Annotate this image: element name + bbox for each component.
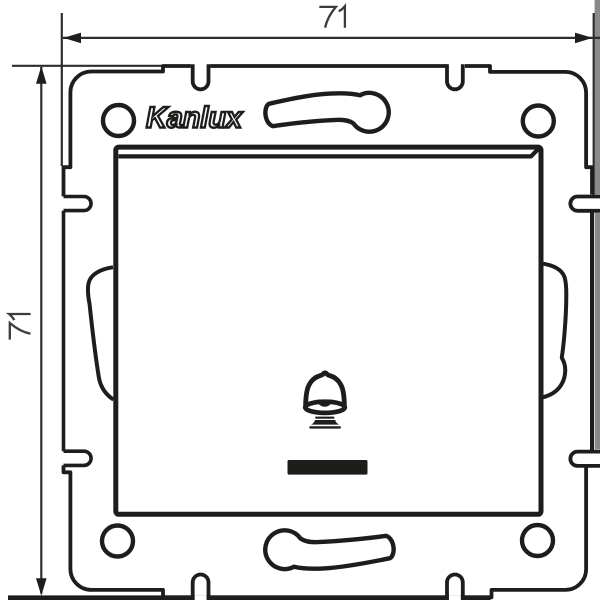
svg-text:Kanlux: Kanlux xyxy=(146,101,243,134)
